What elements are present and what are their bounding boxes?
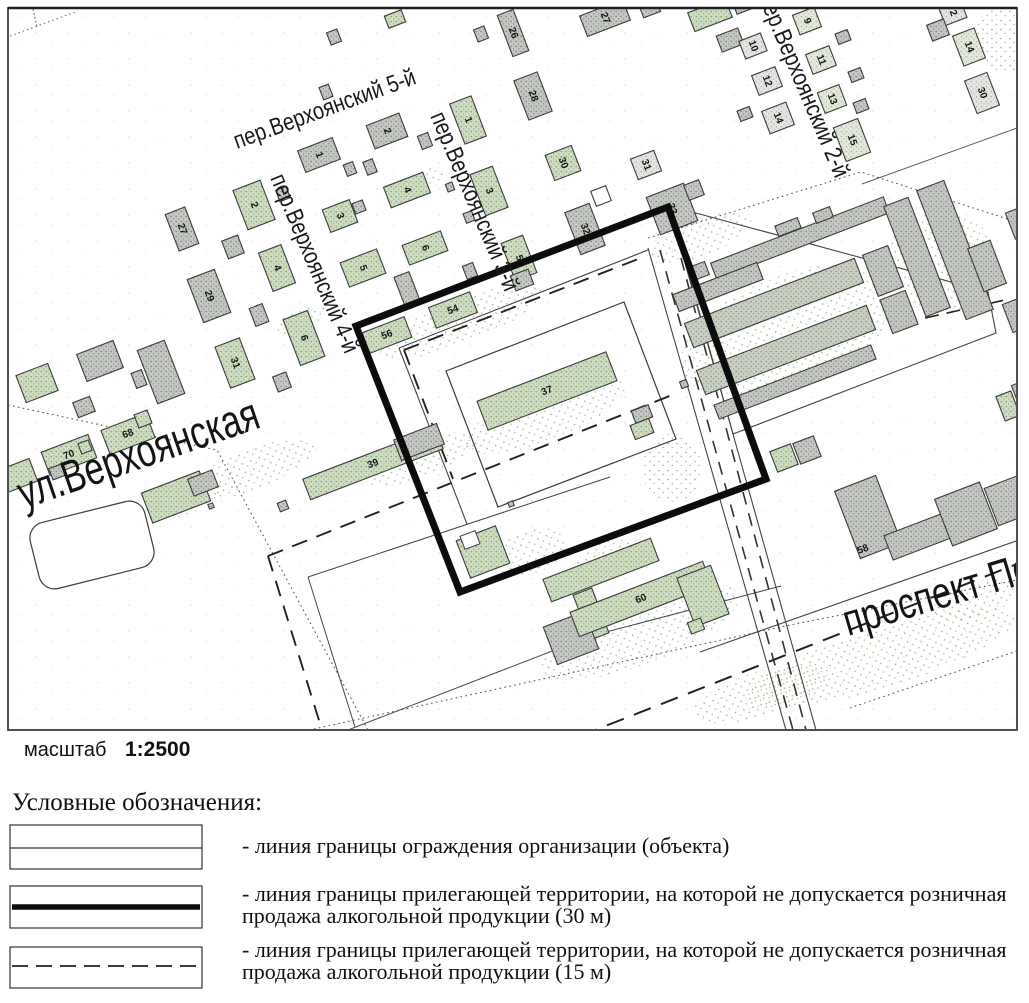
svg-text:продажа алкогольной продукции: продажа алкогольной продукции (30 м) — [242, 903, 611, 928]
svg-text:Условные обозначения:: Условные обозначения: — [12, 789, 262, 816]
svg-text:1:2500: 1:2500 — [125, 738, 190, 761]
svg-text:масштаб: масштаб — [24, 739, 106, 761]
svg-text:- линия границы ограждения орг: - линия границы ограждения организации (… — [242, 833, 729, 858]
svg-text:продажа алкогольной продукции: продажа алкогольной продукции (15 м) — [242, 959, 611, 984]
